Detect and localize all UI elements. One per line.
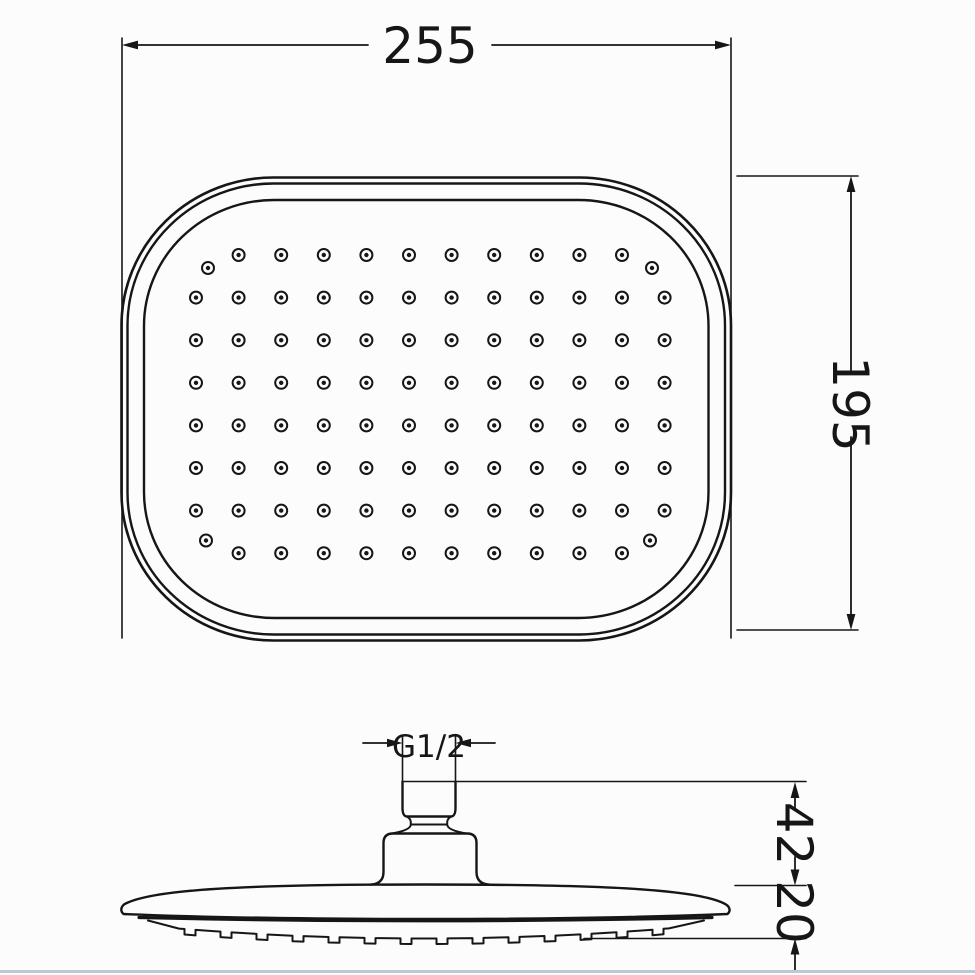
- nozzle-dot-center: [577, 253, 581, 257]
- nozzle-dot-center: [236, 551, 240, 555]
- nozzle-dot-center: [364, 551, 368, 555]
- nozzle-dot-center: [322, 423, 326, 427]
- nozzle-dot-center: [407, 381, 411, 385]
- nozzle-dot-center: [364, 253, 368, 257]
- nozzle-dot-center: [279, 338, 283, 342]
- nozzle-dot-center: [449, 466, 453, 470]
- nozzle-dot-center: [279, 551, 283, 555]
- arrow-up-icon: [847, 176, 856, 192]
- nozzle-dot-grid: [190, 249, 671, 559]
- nozzle-dot-center: [279, 466, 283, 470]
- dim-width: 255: [122, 17, 731, 638]
- nozzle-dot-center: [620, 466, 624, 470]
- nozzle-dot-center: [236, 253, 240, 257]
- nozzle-dot-center: [194, 423, 198, 427]
- nozzle-dot-center: [662, 338, 666, 342]
- nozzle-dot-center: [236, 381, 240, 385]
- nozzle-dot-center: [364, 295, 368, 299]
- nozzle-dot-center: [662, 508, 666, 512]
- dim-height: 195: [737, 176, 879, 630]
- product-drawing-page: 255 195: [0, 0, 975, 975]
- nozzle-dot-center: [194, 381, 198, 385]
- shower-head-top-view: [122, 178, 732, 641]
- head-outline-outer: [122, 178, 732, 641]
- nozzle-dot-center: [322, 381, 326, 385]
- disc-profile: [121, 885, 729, 920]
- nozzle-dot-center: [662, 423, 666, 427]
- arrow-up-icon: [791, 782, 800, 798]
- nozzle-dot-center: [279, 253, 283, 257]
- nozzle-dot-center: [322, 466, 326, 470]
- nozzle-dot-center: [194, 295, 198, 299]
- nozzle-dot-center: [492, 253, 496, 257]
- nozzle-dot-center: [492, 423, 496, 427]
- nozzle-dot-center: [236, 466, 240, 470]
- head-outline-inner: [144, 200, 709, 618]
- nozzle-dot-center: [322, 253, 326, 257]
- dim-width-label: 255: [382, 17, 477, 75]
- nozzle-dot-center: [322, 551, 326, 555]
- nozzle-dot-center: [492, 338, 496, 342]
- nozzle-dot-center: [535, 423, 539, 427]
- thread-size-label: G1/2: [392, 729, 466, 765]
- nozzle-dot-center: [449, 253, 453, 257]
- nozzle-dot-center: [449, 295, 453, 299]
- nozzle-dot-center: [577, 295, 581, 299]
- nozzle-dot-center: [535, 338, 539, 342]
- nozzle-dot-center: [535, 253, 539, 257]
- nozzle-dot-center: [577, 551, 581, 555]
- nozzle-dot-center: [236, 338, 240, 342]
- nozzle-dot-center: [662, 295, 666, 299]
- nozzle-dot-center: [650, 266, 654, 270]
- nozzle-dot-center: [407, 508, 411, 512]
- nozzle-dot-center: [194, 508, 198, 512]
- nozzle-dot-center: [364, 381, 368, 385]
- nozzle-dot-center: [407, 295, 411, 299]
- nozzle-dot-center: [492, 551, 496, 555]
- nozzle-dot-center: [620, 551, 624, 555]
- nozzle-dot-center: [279, 295, 283, 299]
- nozzle-dot-center: [407, 466, 411, 470]
- nozzle-dot-center: [620, 253, 624, 257]
- head-outline-mid: [128, 184, 726, 635]
- thread-pipe: [403, 782, 456, 817]
- nozzle-dot-center: [535, 508, 539, 512]
- nozzle-dot-center: [279, 423, 283, 427]
- nozzle-dot-center: [279, 381, 283, 385]
- nozzle-dot-center: [322, 338, 326, 342]
- nozzle-dot-center: [662, 466, 666, 470]
- nozzle-dot-center: [322, 295, 326, 299]
- nozzle-dot-center: [407, 338, 411, 342]
- nozzle-dot-center: [535, 551, 539, 555]
- nozzle-dot-center: [449, 338, 453, 342]
- neck-flare: [392, 817, 466, 834]
- nozzle-dot-center: [364, 338, 368, 342]
- collar: [371, 834, 489, 885]
- nozzle-dot-center: [492, 381, 496, 385]
- shower-head-side-view: [121, 782, 806, 945]
- nozzle-dot-center: [492, 508, 496, 512]
- nozzle-dot-center: [204, 538, 208, 542]
- head-thickness-label: 20: [765, 880, 823, 944]
- nozzle-dot-center: [577, 423, 581, 427]
- nozzle-dot-center: [407, 253, 411, 257]
- nozzle-dot-center: [407, 551, 411, 555]
- nozzle-dot-center: [577, 381, 581, 385]
- nozzle-dot-center: [577, 508, 581, 512]
- connector-height-label: 42: [765, 802, 823, 866]
- nozzle-dot-center: [577, 338, 581, 342]
- nozzle-dot-center: [322, 508, 326, 512]
- dim-head-thickness: 20: [765, 880, 823, 970]
- nozzle-dot-center: [236, 508, 240, 512]
- nozzle-dot-center: [535, 295, 539, 299]
- nozzle-dot-center: [577, 466, 581, 470]
- nozzle-dot-center: [194, 466, 198, 470]
- nozzle-dot-center: [535, 381, 539, 385]
- nozzle-dot-center: [364, 423, 368, 427]
- arrow-left-icon: [122, 41, 138, 50]
- nozzle-dot-center: [236, 295, 240, 299]
- arrow-right-icon: [715, 41, 731, 50]
- nozzle-dot-center: [206, 266, 210, 270]
- nozzle-dot-center: [620, 295, 624, 299]
- nozzle-dot-center: [620, 423, 624, 427]
- nozzle-dot-center: [364, 508, 368, 512]
- dim-thread: G1/2: [363, 729, 495, 780]
- nozzle-dot-center: [279, 508, 283, 512]
- technical-drawing-canvas: 255 195: [0, 0, 975, 975]
- arrow-down-icon: [847, 614, 856, 630]
- nozzle-dot-center: [449, 381, 453, 385]
- nozzle-dot-center: [194, 338, 198, 342]
- nozzle-dot-center: [236, 423, 240, 427]
- nozzle-dot-center: [492, 295, 496, 299]
- nozzle-dot-center: [648, 538, 652, 542]
- nozzle-dot-center: [407, 423, 411, 427]
- nozzle-dot-center: [620, 338, 624, 342]
- spray-plate-ticks: [148, 921, 704, 945]
- nozzle-dot-center: [449, 508, 453, 512]
- nozzle-dot-center: [364, 466, 368, 470]
- nozzle-dot-center: [492, 466, 496, 470]
- dim-height-label: 195: [821, 356, 879, 451]
- nozzle-dot-center: [620, 508, 624, 512]
- nozzle-dot-center: [662, 381, 666, 385]
- nozzle-dot-center: [620, 381, 624, 385]
- nozzle-dot-center: [535, 466, 539, 470]
- nozzle-dot-center: [449, 423, 453, 427]
- nozzle-dot-center: [449, 551, 453, 555]
